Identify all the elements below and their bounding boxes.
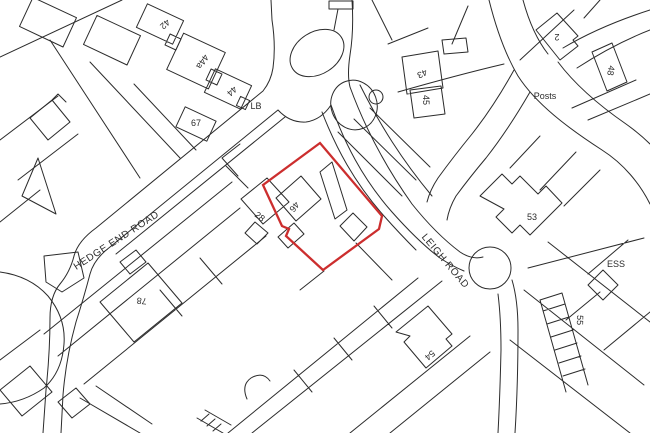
label-plot-43: 43 xyxy=(416,67,429,80)
label-plot-2: 2 xyxy=(554,32,559,42)
label-plot-53: 53 xyxy=(527,212,537,222)
label-plot-67: 67 xyxy=(191,118,201,128)
building-outlines xyxy=(0,0,627,418)
site-plan-map: 42 44a 44 LB 67 HEDGE END ROAD 28 46 LEI… xyxy=(0,0,650,433)
site-plan-page: 42 44a 44 LB 67 HEDGE END ROAD 28 46 LEI… xyxy=(0,0,650,433)
roundabout-island xyxy=(324,74,384,137)
map-linework xyxy=(0,0,650,433)
label-plot-42: 42 xyxy=(158,17,172,31)
label-plot-45: 45 xyxy=(421,95,431,105)
roundabout-island xyxy=(281,20,353,87)
label-ess: ESS xyxy=(607,259,625,269)
turning-circle xyxy=(469,247,511,289)
label-plot-78: 78 xyxy=(136,296,147,307)
road-sign xyxy=(329,1,353,9)
label-plot-55: 55 xyxy=(575,315,585,325)
label-plot-44a: 44a xyxy=(194,53,211,71)
label-plot-48: 48 xyxy=(605,65,617,77)
label-posts: Posts xyxy=(534,91,557,101)
label-lb: LB xyxy=(250,101,261,111)
parcel-boundaries xyxy=(0,0,650,433)
label-leigh-road: LEIGH ROAD xyxy=(419,232,471,291)
label-plot-44: 44 xyxy=(225,84,239,98)
